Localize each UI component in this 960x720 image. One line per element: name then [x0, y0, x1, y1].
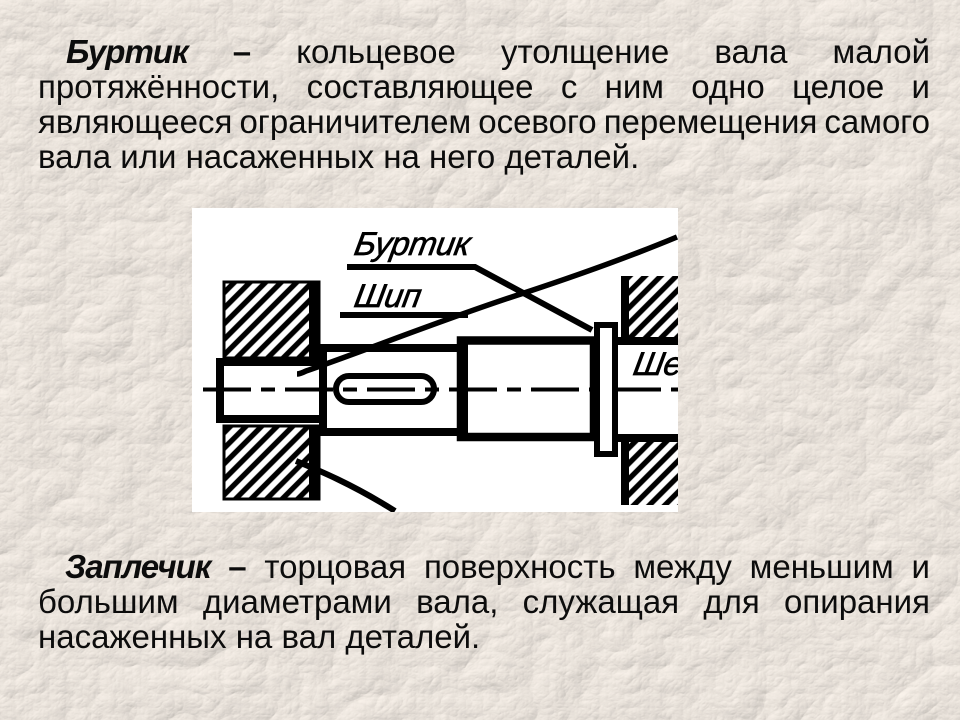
svg-text:Шейка: Шейка — [631, 346, 678, 383]
svg-text:Буртик: Буртик — [352, 226, 475, 263]
svg-text:Шип: Шип — [352, 278, 424, 315]
